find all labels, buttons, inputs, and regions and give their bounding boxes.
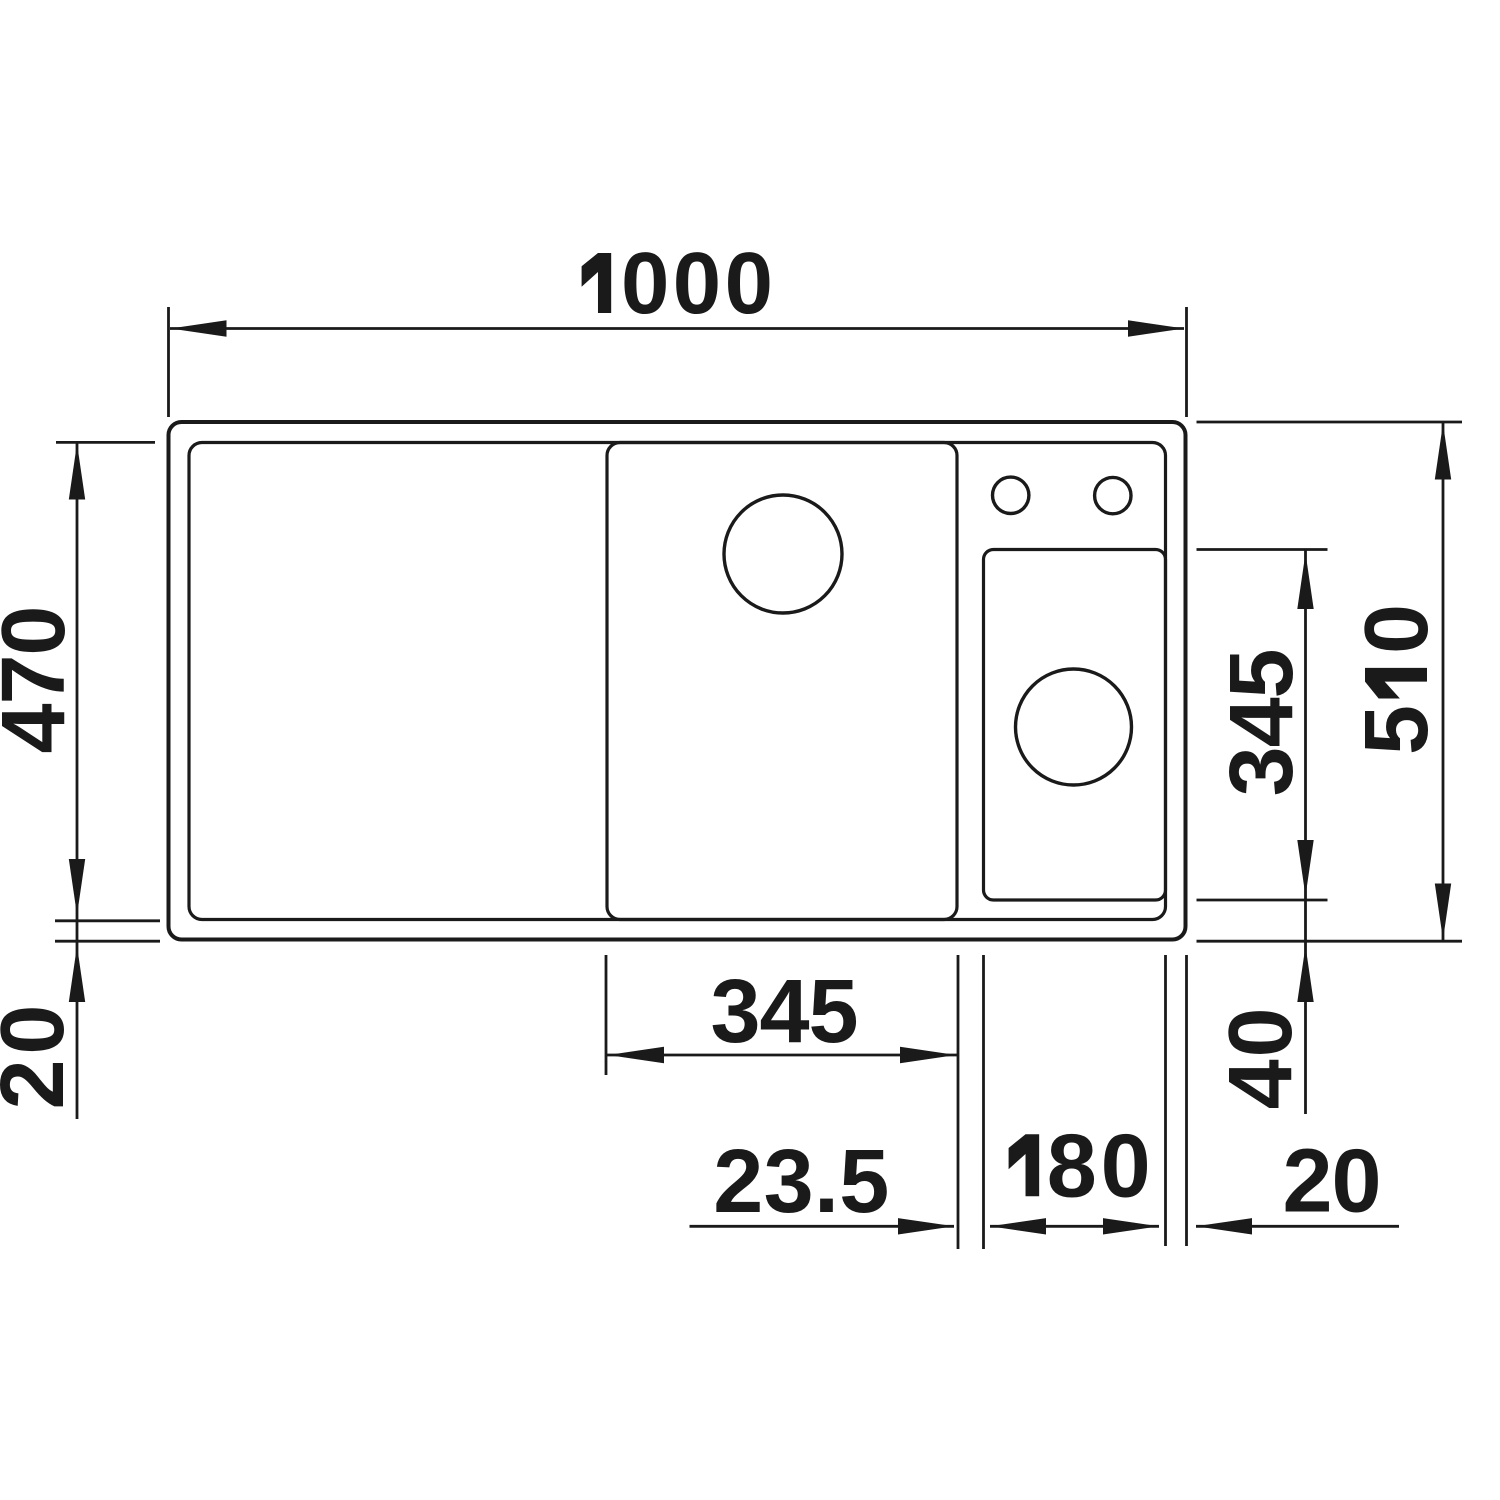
- svg-text:40: 40: [1211, 1007, 1311, 1109]
- svg-text:000: 000: [621, 235, 773, 332]
- svg-text:0: 0: [1347, 604, 1447, 654]
- svg-text:23.5: 23.5: [713, 1132, 889, 1232]
- svg-text:5: 5: [1347, 705, 1447, 755]
- svg-text:470: 470: [0, 606, 84, 754]
- svg-text:345: 345: [711, 962, 859, 1062]
- svg-text:20: 20: [1283, 1132, 1382, 1232]
- svg-text:345: 345: [1212, 648, 1312, 796]
